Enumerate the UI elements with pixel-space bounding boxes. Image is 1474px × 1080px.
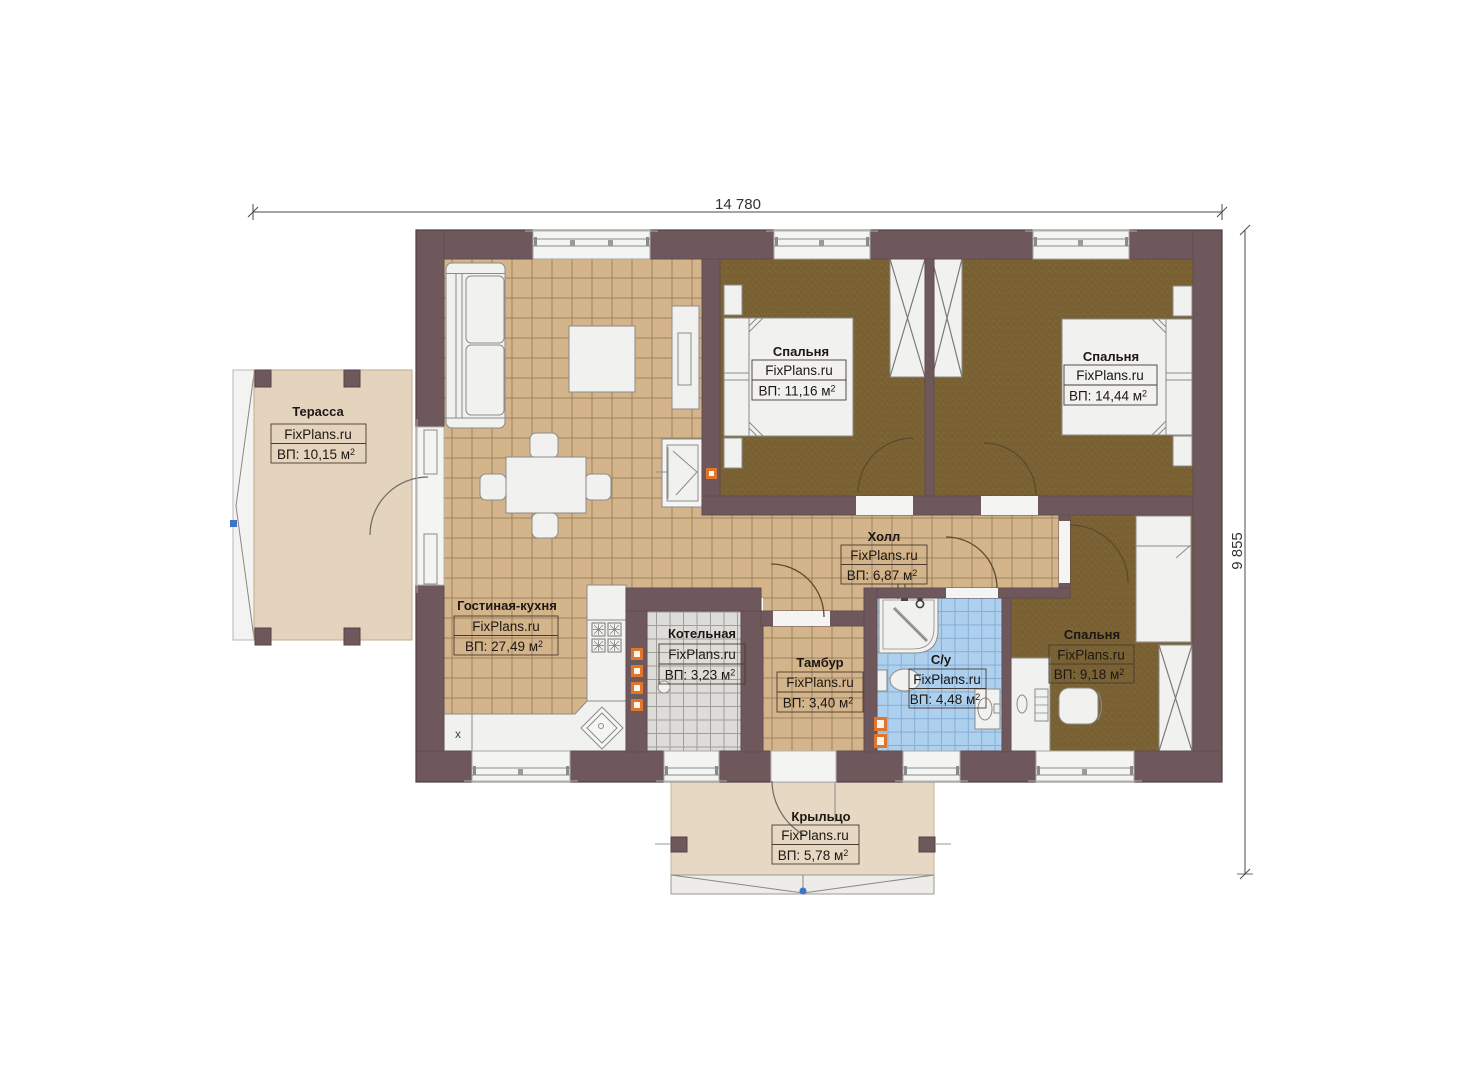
svg-text:ВП: 27,49 м2: ВП: 27,49 м2 [465, 639, 543, 654]
svg-text:Спальня: Спальня [1083, 349, 1139, 364]
svg-text:Терасса: Терасса [292, 404, 344, 419]
svg-text:ВП: 5,78 м2: ВП: 5,78 м2 [778, 848, 849, 863]
svg-text:FixPlans.ru: FixPlans.ru [913, 672, 981, 687]
svg-text:Спальня: Спальня [1064, 627, 1120, 642]
svg-text:ВП: 3,40 м2: ВП: 3,40 м2 [783, 696, 854, 711]
svg-text:9 855: 9 855 [1229, 532, 1246, 570]
svg-text:ВП: 11,16 м2: ВП: 11,16 м2 [758, 384, 835, 399]
svg-text:14 780: 14 780 [715, 196, 761, 213]
svg-text:Котельная: Котельная [668, 626, 736, 641]
svg-text:FixPlans.ru: FixPlans.ru [786, 675, 854, 690]
svg-text:FixPlans.ru: FixPlans.ru [472, 619, 540, 634]
svg-text:FixPlans.ru: FixPlans.ru [668, 647, 736, 662]
svg-text:Холл: Холл [868, 529, 901, 544]
svg-text:FixPlans.ru: FixPlans.ru [284, 427, 352, 442]
svg-text:ВП: 3,23 м2: ВП: 3,23 м2 [665, 668, 736, 683]
svg-text:С/у: С/у [931, 652, 952, 667]
svg-text:x: x [455, 727, 461, 741]
svg-text:FixPlans.ru: FixPlans.ru [1076, 368, 1144, 383]
svg-text:FixPlans.ru: FixPlans.ru [781, 828, 849, 843]
svg-text:FixPlans.ru: FixPlans.ru [765, 363, 833, 378]
svg-text:Спальня: Спальня [773, 344, 829, 359]
svg-text:ВП: 4,48 м2: ВП: 4,48 м2 [910, 692, 981, 707]
svg-text:Гостиная-кухня: Гостиная-кухня [457, 598, 557, 613]
svg-text:ВП: 14,44 м2: ВП: 14,44 м2 [1069, 389, 1147, 404]
svg-text:Тамбур: Тамбур [796, 655, 843, 670]
svg-text:ВП: 10,15 м2: ВП: 10,15 м2 [277, 447, 355, 462]
svg-text:FixPlans.ru: FixPlans.ru [850, 548, 918, 563]
svg-text:FixPlans.ru: FixPlans.ru [1057, 648, 1125, 663]
svg-text:ВП: 6,87 м2: ВП: 6,87 м2 [847, 568, 918, 583]
svg-text:ВП: 9,18 м2: ВП: 9,18 м2 [1054, 667, 1125, 682]
svg-text:Крыльцо: Крыльцо [791, 809, 850, 824]
